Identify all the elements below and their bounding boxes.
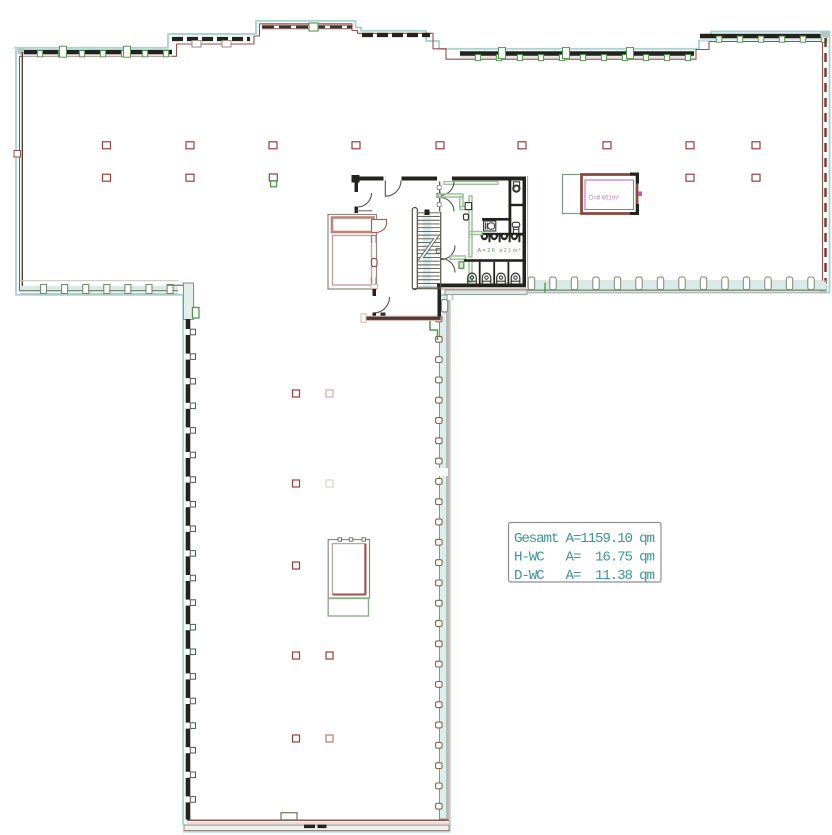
- svg-text:A=26 a21m²: A=26 a21m²: [478, 248, 521, 254]
- svg-text:Gesamt A=1159.10 qm: Gesamt A=1159.10 qm: [514, 531, 655, 547]
- svg-text:D=8 661m²: D=8 661m²: [589, 196, 619, 202]
- svg-text:H-WC A= 16.75 qm: H-WC A= 16.75 qm: [514, 550, 655, 566]
- svg-text:D-WC A= 11.38 qm: D-WC A= 11.38 qm: [514, 568, 655, 584]
